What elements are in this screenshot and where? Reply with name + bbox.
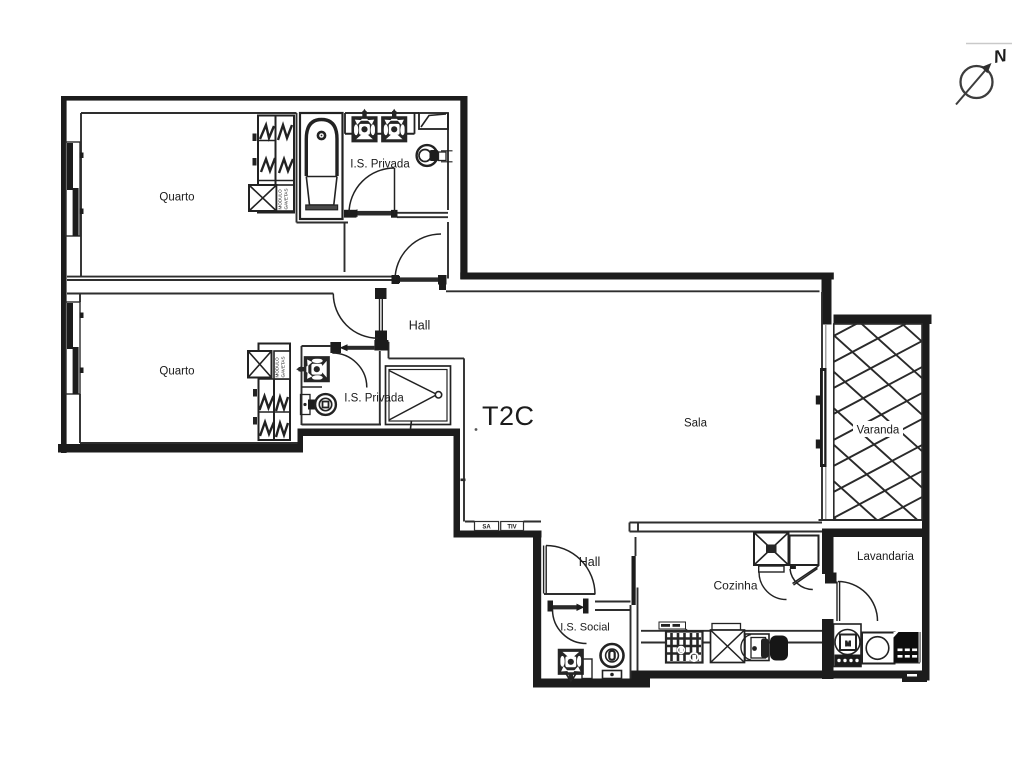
svg-text:TIV: TIV — [507, 524, 516, 530]
svg-text:M: M — [845, 641, 851, 648]
svg-text:MODULO: MODULO — [278, 189, 283, 210]
svg-text:Quarto: Quarto — [159, 192, 194, 204]
svg-text:Lavandaria: Lavandaria — [857, 551, 915, 563]
svg-text:Varanda: Varanda — [857, 425, 900, 437]
svg-text:I.S. Privada: I.S. Privada — [350, 159, 410, 171]
svg-text:SA: SA — [482, 524, 491, 530]
svg-text:Hall: Hall — [579, 555, 601, 569]
svg-text:Quarto: Quarto — [159, 366, 194, 378]
svg-text:Sala: Sala — [684, 418, 708, 430]
svg-text:Cozinha: Cozinha — [713, 579, 757, 593]
svg-text:MODULO: MODULO — [275, 357, 280, 378]
svg-text:GAVETAS: GAVETAS — [281, 356, 286, 377]
svg-text:I.S. Social: I.S. Social — [560, 622, 610, 634]
svg-text:I.S. Privada: I.S. Privada — [344, 393, 404, 405]
svg-text:T2C: T2C — [482, 401, 535, 431]
svg-text:GAVETAS: GAVETAS — [284, 188, 289, 209]
svg-text:Hall: Hall — [409, 319, 431, 333]
